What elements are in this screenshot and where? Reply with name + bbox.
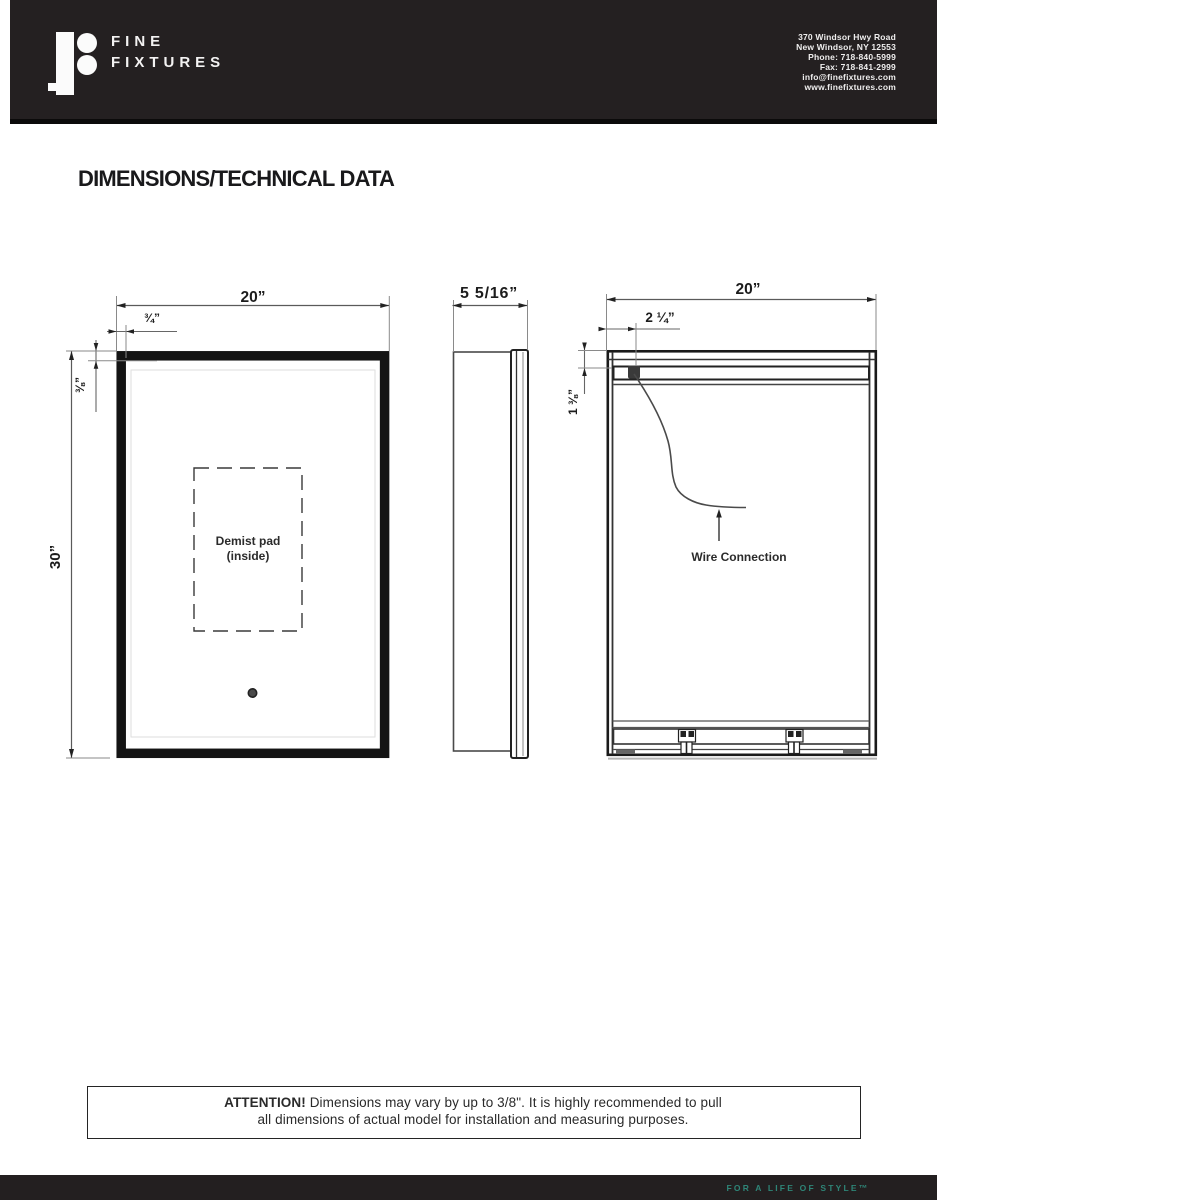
svg-text:(inside): (inside): [227, 549, 270, 563]
svg-text:Wire Connection: Wire Connection: [691, 550, 786, 564]
svg-text:5 5/16”: 5 5/16”: [460, 285, 518, 302]
svg-text:30”: 30”: [47, 545, 64, 569]
svg-text:20”: 20”: [241, 289, 266, 306]
svg-text:20”: 20”: [736, 281, 761, 298]
svg-text:Demist pad: Demist pad: [216, 534, 281, 548]
svg-text:1 ⅜”: 1 ⅜”: [566, 389, 580, 415]
svg-text:⅜”: ⅜”: [73, 377, 87, 393]
svg-text:2 ¼”: 2 ¼”: [645, 310, 674, 325]
svg-text:¾”: ¾”: [144, 311, 160, 325]
